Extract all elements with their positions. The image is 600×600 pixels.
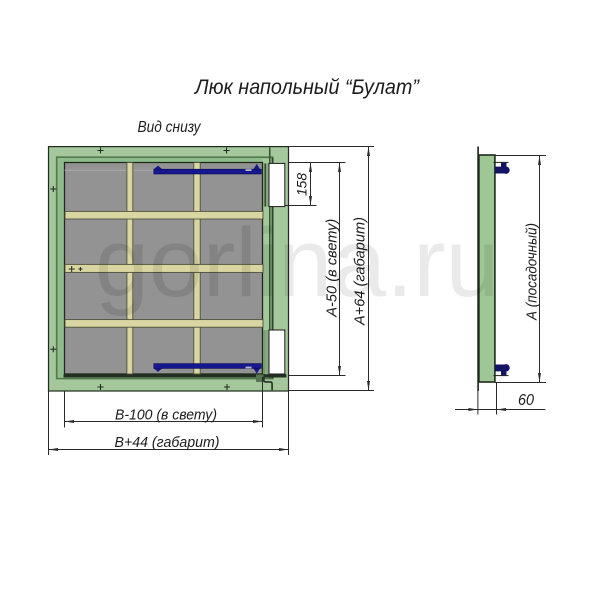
svg-text:158: 158 xyxy=(295,173,310,196)
svg-text:gorlina.ru: gorlina.ru xyxy=(95,208,499,317)
svg-text:В+44 (габарит): В+44 (габарит) xyxy=(115,434,220,451)
svg-text:В-100 (в свету): В-100 (в свету) xyxy=(115,407,217,424)
svg-text:Вид снизу: Вид снизу xyxy=(138,119,202,136)
svg-text:Люк напольный “Булат”: Люк напольный “Булат” xyxy=(193,76,420,99)
svg-text:А (посадочный): А (посадочный) xyxy=(525,223,541,321)
svg-text:60: 60 xyxy=(518,392,534,409)
